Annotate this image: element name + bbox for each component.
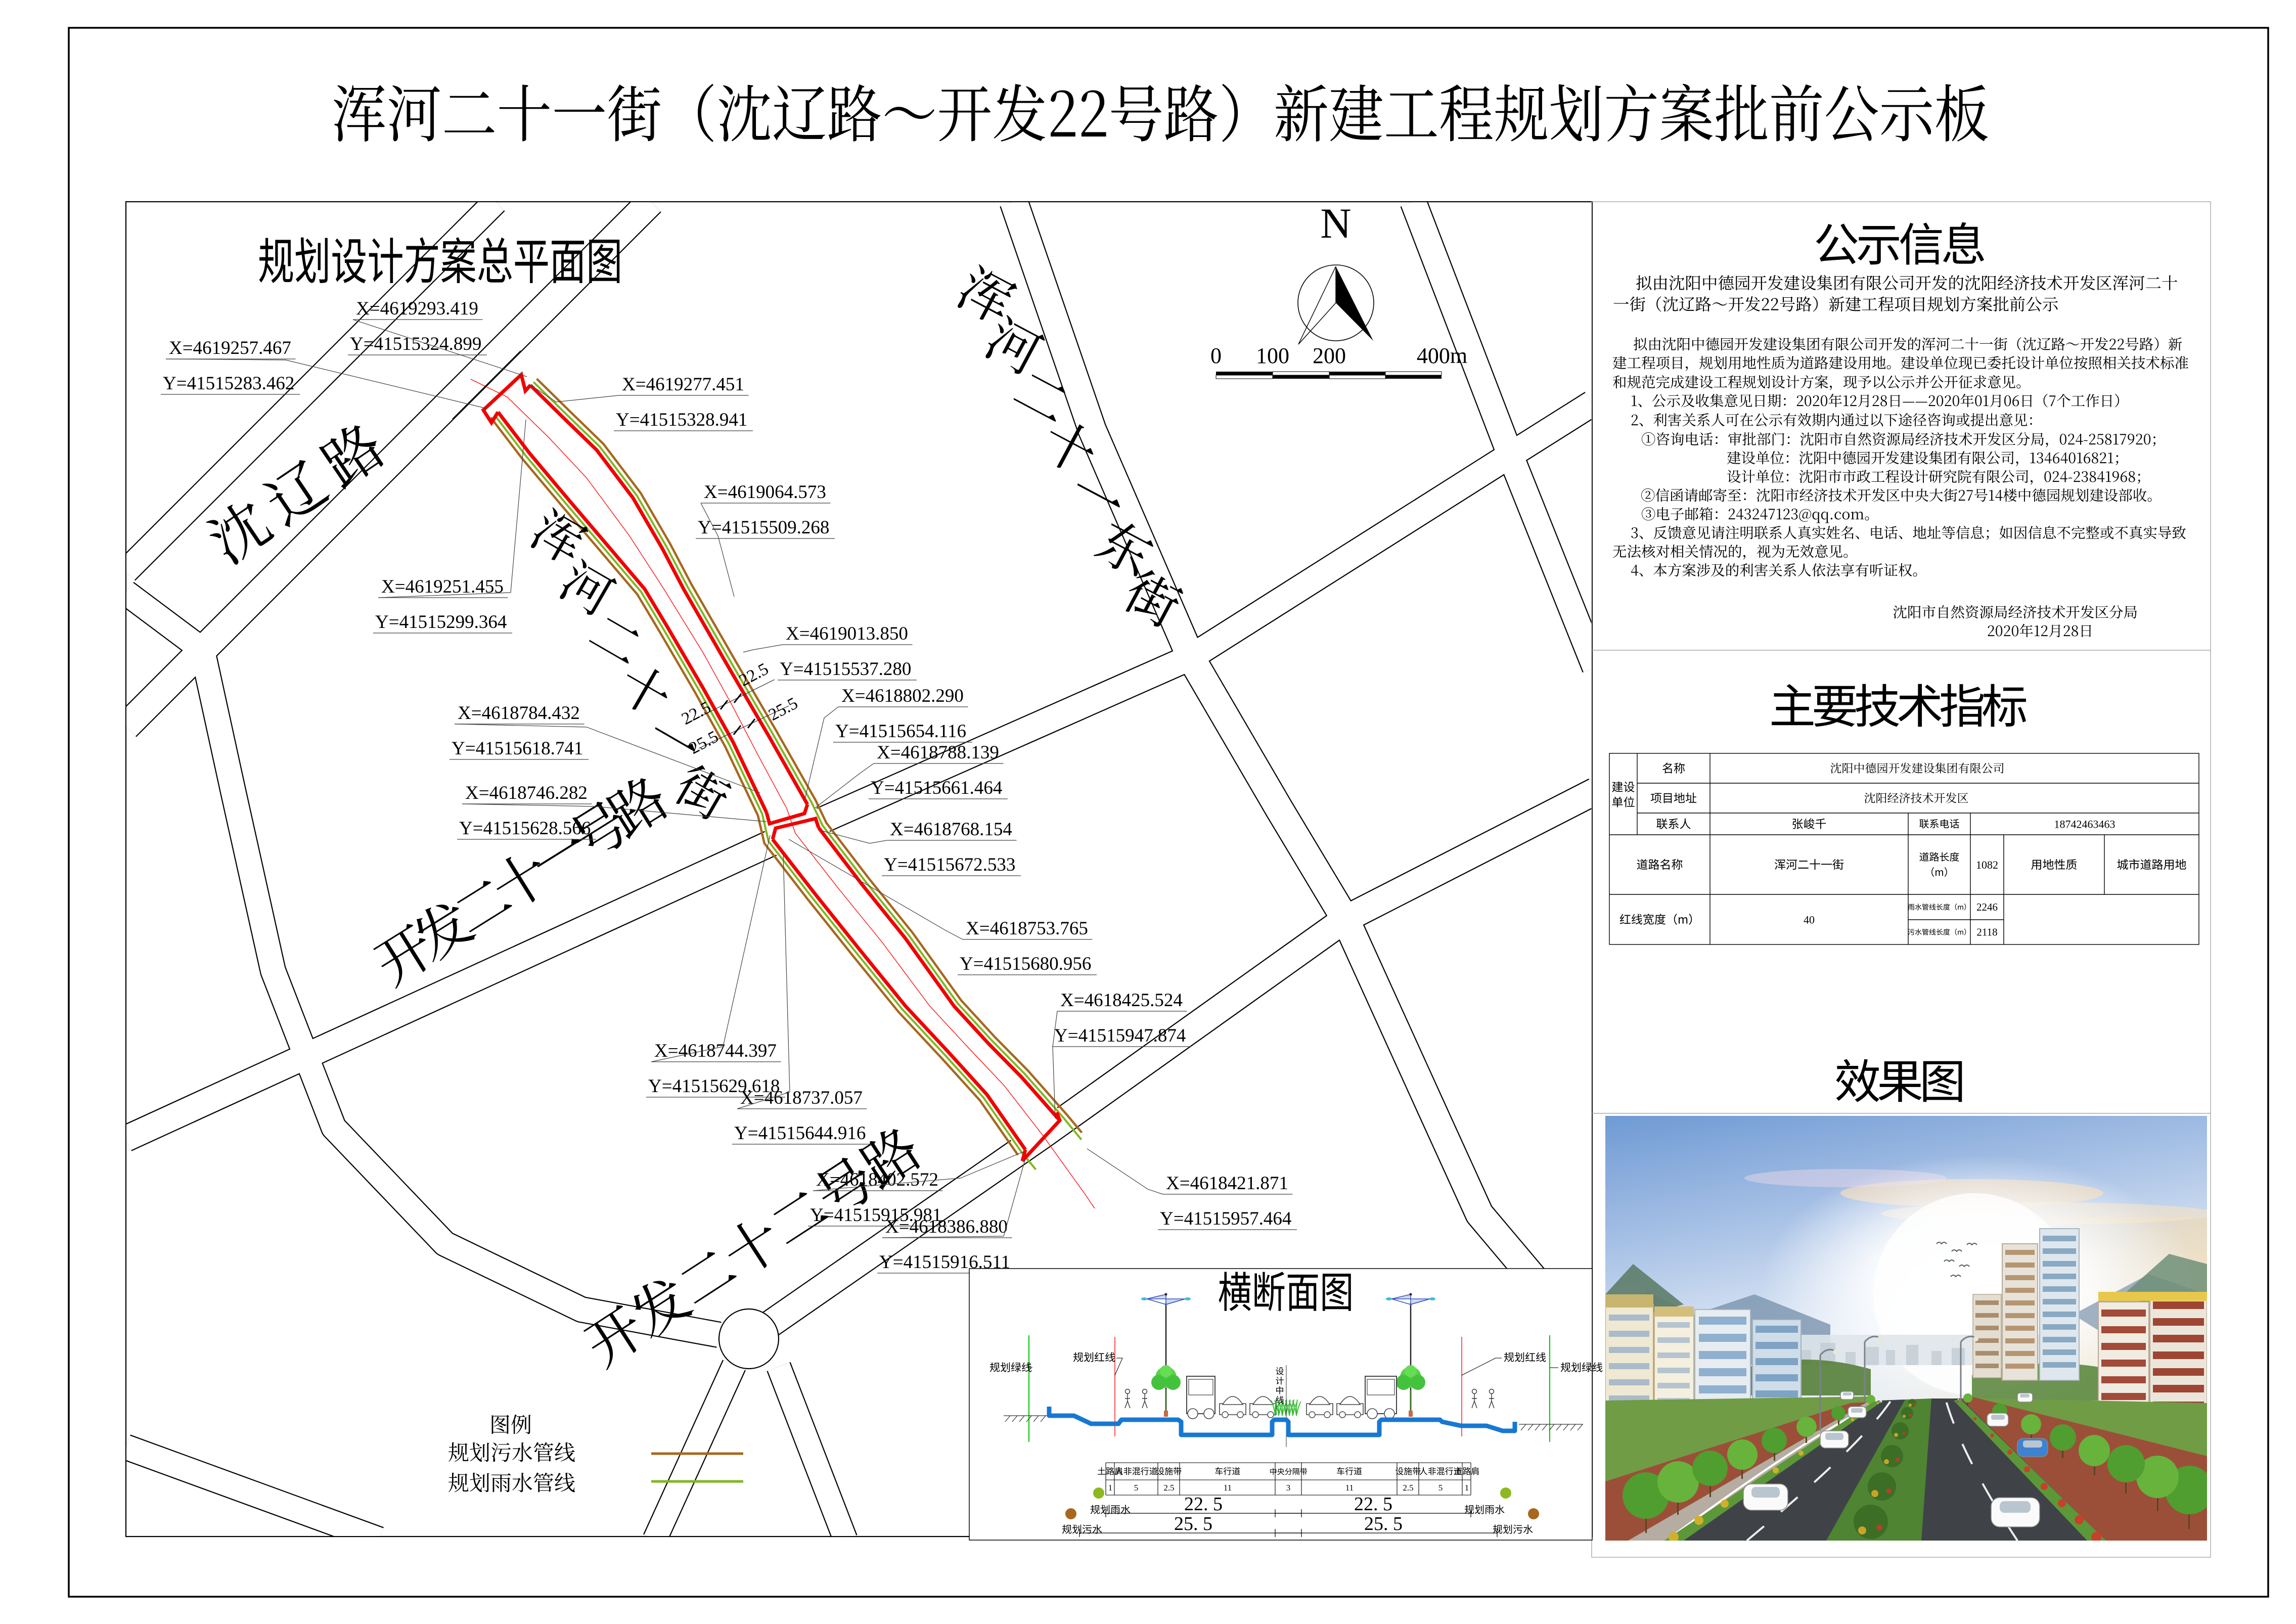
- svg-text:Y=41515957.464: Y=41515957.464: [1160, 1208, 1291, 1229]
- svg-text:X=4618753.765: X=4618753.765: [966, 918, 1088, 939]
- svg-text:22. 5: 22. 5: [1354, 1494, 1392, 1515]
- svg-text:Y=41515947.874: Y=41515947.874: [1054, 1025, 1186, 1046]
- svg-text:X=4618788.139: X=4618788.139: [877, 742, 999, 763]
- svg-text:2.5: 2.5: [1163, 1483, 1174, 1493]
- svg-text:5: 5: [1438, 1483, 1443, 1493]
- svg-text:X=4619277.451: X=4619277.451: [622, 374, 744, 395]
- svg-text:40: 40: [1804, 914, 1815, 926]
- svg-text:Y=41515299.364: Y=41515299.364: [375, 612, 507, 633]
- svg-text:Y=41515661.464: Y=41515661.464: [871, 778, 1002, 798]
- svg-text:Y=41515644.916: Y=41515644.916: [734, 1123, 866, 1144]
- svg-text:25. 5: 25. 5: [1364, 1513, 1403, 1535]
- svg-text:Y=41515618.741: Y=41515618.741: [452, 738, 583, 759]
- svg-text:X=4619251.455: X=4619251.455: [381, 576, 504, 597]
- svg-text:11: 11: [1224, 1483, 1232, 1493]
- svg-text:X=4618425.524: X=4618425.524: [1060, 990, 1183, 1011]
- svg-text:22. 5: 22. 5: [1184, 1494, 1223, 1515]
- svg-text:X=4618402.572: X=4618402.572: [816, 1169, 938, 1190]
- svg-text:X=4618386.880: X=4618386.880: [885, 1216, 1008, 1237]
- svg-text:400m: 400m: [1417, 343, 1467, 368]
- svg-text:200: 200: [1313, 343, 1346, 368]
- svg-text:1082: 1082: [1976, 859, 1998, 871]
- svg-text:2246: 2246: [1976, 901, 1998, 913]
- svg-text:Y=41515324.899: Y=41515324.899: [350, 334, 481, 354]
- svg-text:X=4619064.573: X=4619064.573: [704, 482, 826, 503]
- svg-text:5: 5: [1134, 1483, 1139, 1493]
- svg-text:X=4618421.871: X=4618421.871: [1166, 1173, 1288, 1194]
- svg-text:1: 1: [1465, 1483, 1469, 1493]
- svg-text:18742463463: 18742463463: [2054, 818, 2115, 831]
- svg-text:Y=41515328.941: Y=41515328.941: [616, 410, 747, 430]
- svg-text:Y=41515680.956: Y=41515680.956: [960, 954, 1091, 974]
- svg-text:100: 100: [1256, 343, 1289, 368]
- svg-text:X=4619257.467: X=4619257.467: [169, 338, 291, 358]
- svg-text:X=4618737.057: X=4618737.057: [740, 1088, 863, 1108]
- svg-text:0: 0: [1210, 343, 1222, 368]
- svg-text:X=4618768.154: X=4618768.154: [890, 819, 1012, 840]
- svg-text:X=4618784.432: X=4618784.432: [458, 703, 580, 724]
- svg-text:1: 1: [1108, 1483, 1113, 1493]
- svg-text:X=4618746.282: X=4618746.282: [465, 783, 588, 803]
- svg-text:X=4619013.850: X=4619013.850: [786, 623, 908, 644]
- svg-text:Y=41515537.280: Y=41515537.280: [780, 659, 911, 680]
- svg-text:Y=41515654.116: Y=41515654.116: [835, 721, 966, 742]
- svg-text:3: 3: [1286, 1483, 1291, 1493]
- svg-text:25. 5: 25. 5: [1174, 1513, 1212, 1535]
- svg-text:2118: 2118: [1976, 926, 1997, 938]
- svg-text:Y=41515672.533: Y=41515672.533: [884, 854, 1015, 875]
- svg-text:X=4619293.419: X=4619293.419: [356, 298, 478, 319]
- svg-text:X=4618744.397: X=4618744.397: [654, 1041, 777, 1061]
- svg-text:N: N: [1320, 200, 1351, 247]
- svg-text:11: 11: [1345, 1483, 1354, 1493]
- svg-text:2.5: 2.5: [1403, 1483, 1413, 1493]
- svg-text:X=4618802.290: X=4618802.290: [841, 686, 964, 706]
- svg-text:Y=41515283.462: Y=41515283.462: [163, 373, 294, 394]
- svg-text:Y=41515628.566: Y=41515628.566: [459, 818, 591, 839]
